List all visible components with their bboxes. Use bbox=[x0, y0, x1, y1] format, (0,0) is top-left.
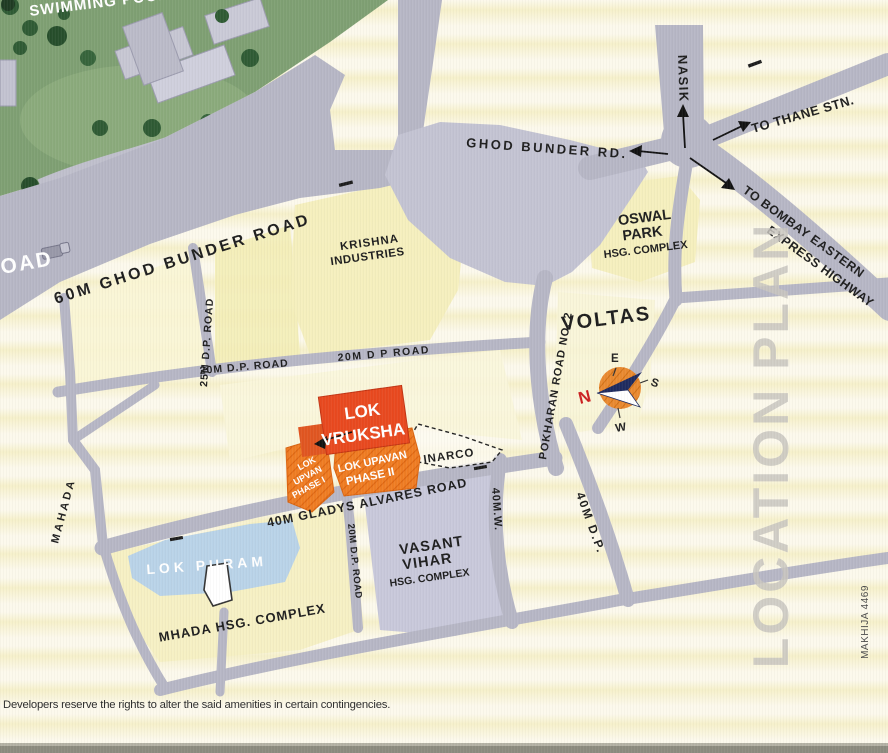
compass-e: E bbox=[611, 353, 619, 365]
makhija-credit: MAKHIJA 4469 bbox=[860, 585, 871, 659]
map-canvas: SWIMMING POOL bbox=[0, 0, 888, 753]
compass-s: S bbox=[649, 377, 661, 391]
road-mahada bbox=[73, 440, 103, 545]
nasik-label: NASIK bbox=[675, 55, 692, 103]
location-plan-map: SWIMMING POOL bbox=[0, 0, 888, 753]
bottom-bar-highlight bbox=[0, 743, 888, 746]
road-tick bbox=[748, 60, 762, 68]
disclaimer-text: Developers reserve the rights to alter t… bbox=[3, 699, 390, 711]
compass-w: W bbox=[614, 421, 627, 435]
road-from-top bbox=[398, 0, 442, 138]
road-40m-dp bbox=[566, 424, 628, 600]
mahada-label: MAHADA bbox=[49, 477, 78, 545]
location-plan-watermark: LOCATION PLAN bbox=[743, 222, 799, 668]
road-left-branch bbox=[73, 385, 155, 440]
road-to-thane bbox=[700, 64, 888, 140]
